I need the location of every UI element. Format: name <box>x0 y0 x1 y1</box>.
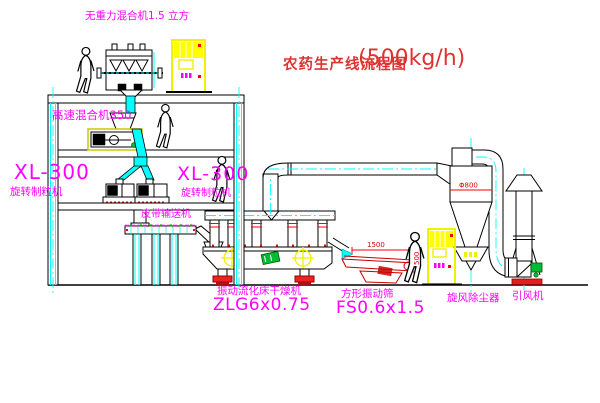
belt-conveyor-drawing <box>125 210 196 285</box>
label-granulator-right-model: XL-300 <box>177 165 249 184</box>
screen-length-dim: 1500 <box>367 241 385 249</box>
label-dryer-model: ZLG6x0.75 <box>213 297 311 314</box>
page-title-capacity: (500kg/h) <box>358 46 465 71</box>
person-second-floor <box>156 104 173 147</box>
label-fan: 引风机 <box>512 291 544 302</box>
flow-arrow-icon <box>342 249 353 259</box>
label-cyclone: 旋风除尘器 <box>447 293 500 304</box>
flow-diagram-canvas: Φ800 <box>0 0 600 403</box>
cyclone-diameter-dim: Φ800 <box>459 182 478 190</box>
control-cabinet-right <box>422 229 462 285</box>
person-roof <box>77 47 94 93</box>
label-high-speed-mixer: 高速混合机350 <box>52 110 131 122</box>
screen-width-dim: 500 <box>413 252 421 265</box>
label-gravity-free-mixer: 无重力混合机1.5 立方 <box>85 11 189 22</box>
fan-motor-icon <box>531 263 542 272</box>
label-granulator-left-name: 旋转制粒机 <box>10 187 63 198</box>
granulators-drawing <box>103 157 169 203</box>
gravity-free-mixer-drawing <box>97 44 163 116</box>
label-granulator-left-model: XL-300 <box>14 162 90 182</box>
label-granulator-right-name: 旋转制粒机 <box>181 189 231 199</box>
label-screen-model: FS0.6x1.5 <box>336 300 425 317</box>
control-cabinet-top <box>166 40 212 92</box>
label-belt-conveyor: 皮带输送机 <box>141 210 191 220</box>
